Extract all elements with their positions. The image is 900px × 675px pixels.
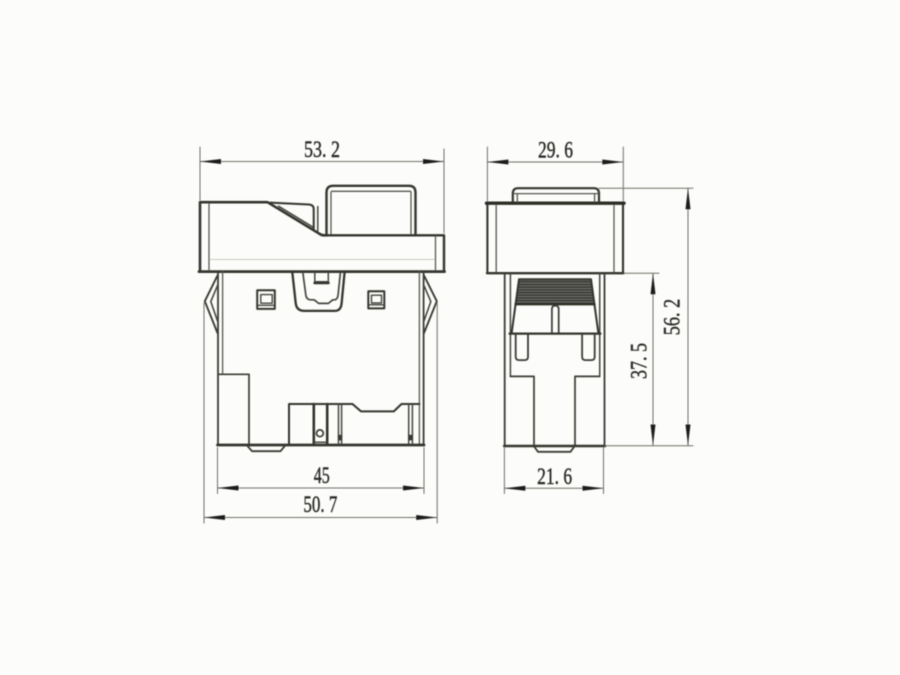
svg-text:29. 6: 29. 6 bbox=[538, 138, 573, 164]
svg-text:53. 2: 53. 2 bbox=[304, 137, 340, 163]
svg-text:37. 5: 37. 5 bbox=[627, 343, 653, 379]
svg-text:45: 45 bbox=[314, 463, 330, 489]
svg-text:21. 6: 21. 6 bbox=[537, 464, 572, 490]
svg-text:56. 2: 56. 2 bbox=[660, 299, 686, 336]
svg-text:50. 7: 50. 7 bbox=[303, 492, 337, 518]
